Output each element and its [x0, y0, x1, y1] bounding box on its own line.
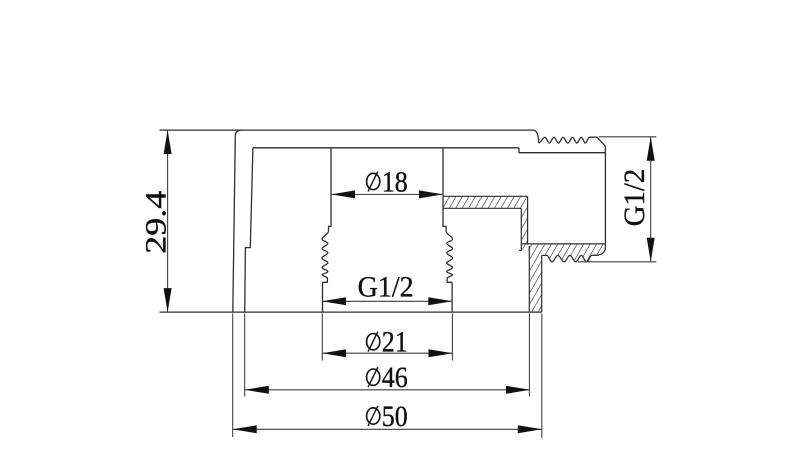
- svg-text:G1/2: G1/2: [618, 169, 651, 227]
- svg-text:46: 46: [382, 361, 408, 394]
- svg-text:29.4: 29.4: [139, 191, 172, 254]
- svg-text:21: 21: [382, 326, 408, 359]
- svg-text:18: 18: [382, 165, 408, 198]
- svg-text:50: 50: [382, 400, 408, 433]
- svg-text:G1/2: G1/2: [358, 271, 414, 304]
